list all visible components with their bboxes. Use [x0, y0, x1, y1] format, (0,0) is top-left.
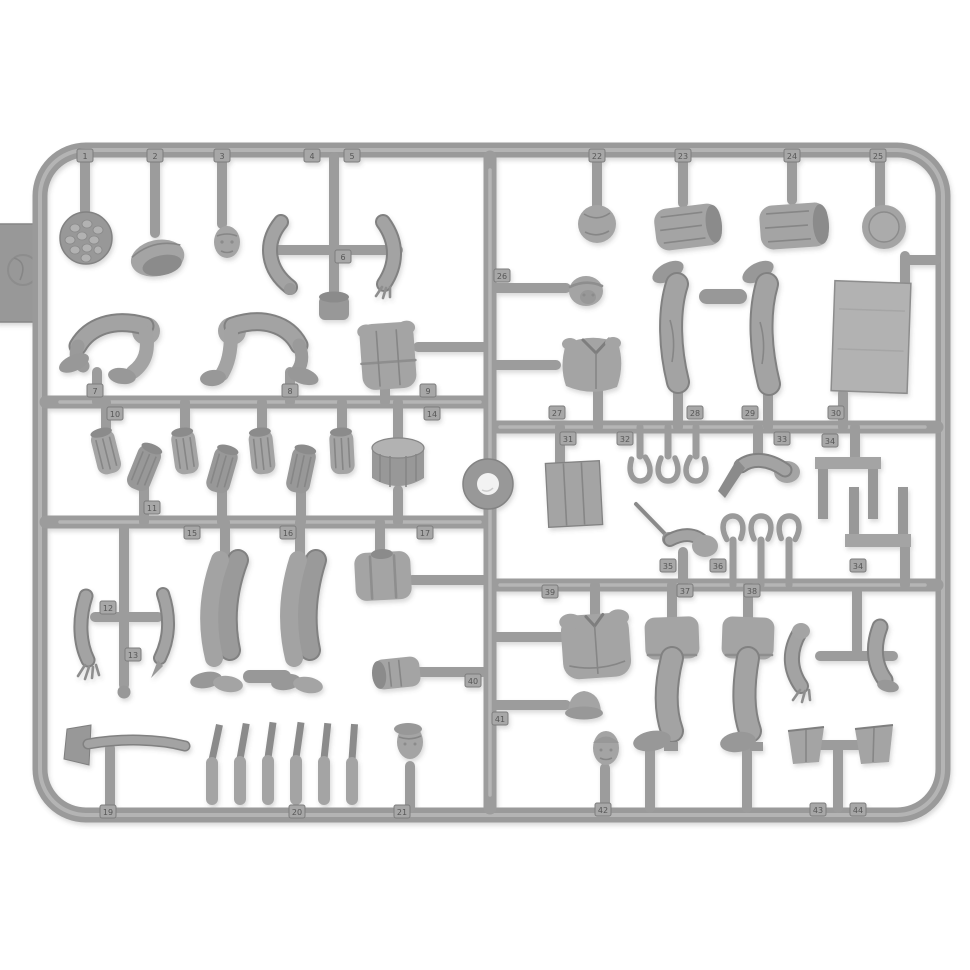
part-seated-legs-a [56, 317, 160, 386]
part-wooden-crate [545, 461, 602, 528]
part-leg-connector [699, 289, 747, 304]
part-number-tag: 22 [589, 149, 605, 162]
svg-text:8: 8 [287, 387, 292, 396]
part-booted-leg-a [632, 616, 700, 754]
part-tunic-torso [562, 337, 621, 392]
part-seated-legs-b [199, 317, 320, 389]
part-number-tag: 23 [675, 149, 691, 162]
part-number-tag: 43 [810, 803, 826, 816]
part-booted-leg-b [719, 616, 775, 754]
svg-text:7: 7 [92, 387, 97, 396]
part-overturned-field-cap [127, 235, 187, 281]
part-axe [64, 725, 185, 765]
part-foot-connector [243, 670, 291, 683]
part-number-tag: 44 [850, 803, 866, 816]
svg-text:26: 26 [497, 272, 507, 281]
svg-text:20: 20 [292, 808, 302, 817]
svg-text:12: 12 [103, 604, 113, 613]
part-wood-stump [372, 438, 424, 487]
part-mess-plate-with-food [60, 212, 112, 264]
part-number-tag: 38 [744, 584, 760, 597]
part-number-tag: 8 [282, 384, 298, 397]
part-number-tag: 34 [850, 559, 866, 572]
svg-text:13: 13 [128, 651, 138, 660]
part-number-tag: 33 [774, 432, 790, 445]
part-inverted-leg-b [739, 256, 777, 384]
part-bare-head [214, 226, 240, 258]
part-log-roll-a [653, 202, 725, 252]
svg-text:24: 24 [787, 152, 797, 161]
part-number-tag: 17 [417, 526, 433, 539]
part-knife-set [206, 722, 358, 805]
part-small-knob [118, 686, 131, 699]
part-number-tag: 37 [677, 584, 693, 597]
svg-text:3: 3 [219, 152, 224, 161]
part-arm-holding-knife [718, 459, 800, 498]
svg-text:44: 44 [853, 806, 863, 815]
part-left-arm [270, 222, 296, 295]
part-number-tag: 41 [492, 712, 508, 725]
svg-text:35: 35 [663, 562, 673, 571]
part-number-tag: 2 [147, 149, 163, 162]
part-number-tag: 27 [549, 406, 565, 419]
part-number-tag: 28 [687, 406, 703, 419]
svg-text:39: 39 [545, 588, 555, 597]
svg-text:43: 43 [813, 806, 823, 815]
part-inverted-leg-a [649, 256, 687, 382]
part-number-tag: 3 [214, 149, 230, 162]
part-number-tag: 32 [617, 432, 633, 445]
part-blanket-panel [831, 281, 911, 394]
part-number-tag: 11 [144, 501, 160, 514]
part-number-tag: 35 [660, 559, 676, 572]
svg-text:15: 15 [187, 529, 197, 538]
svg-text:2: 2 [152, 152, 157, 161]
part-number-tag: 36 [710, 559, 726, 572]
part-round-plate [862, 205, 906, 249]
svg-text:16: 16 [283, 529, 293, 538]
part-number-tag: 31 [560, 432, 576, 445]
part-arm-holding-stick [636, 504, 718, 557]
svg-text:14: 14 [427, 410, 437, 419]
svg-text:40: 40 [468, 677, 478, 686]
sprue-svg: 1234522232425678910142627282930313233341… [0, 0, 970, 970]
part-number-tag: 20 [289, 805, 305, 818]
part-firewood-logs-lower [124, 440, 318, 496]
part-horseshoe-trio-upper [629, 457, 707, 483]
part-number-tag: 9 [420, 384, 436, 397]
svg-text:37: 37 [680, 587, 690, 596]
part-number-tag: 4 [304, 149, 320, 162]
part-number-tag: 25 [870, 149, 886, 162]
part-right-arm-open-hand [376, 222, 394, 298]
part-number-tag: 39 [542, 585, 558, 598]
svg-text:5: 5 [349, 152, 354, 161]
part-number-tag: 14 [424, 407, 440, 420]
sprue-photo: 1234522232425678910142627282930313233341… [0, 0, 970, 970]
part-bent-arm [792, 623, 810, 702]
svg-text:4: 4 [309, 152, 314, 161]
part-horseshoe-trio-lower [722, 515, 799, 539]
svg-text:32: 32 [620, 435, 630, 444]
part-bread-loaf [578, 205, 616, 243]
part-number-tag: 1 [77, 149, 93, 162]
part-side-lying-pot [371, 656, 422, 691]
part-head-with-helmet [593, 731, 619, 765]
part-bucket-a [788, 727, 824, 764]
part-torso-with-suspenders [354, 548, 413, 602]
svg-text:6: 6 [340, 253, 345, 262]
svg-text:34: 34 [853, 562, 863, 571]
part-number-tag: 7 [87, 384, 103, 397]
part-hat [565, 691, 603, 720]
part-number-tag: 26 [494, 269, 510, 282]
svg-text:22: 22 [592, 152, 602, 161]
part-mug [319, 292, 349, 321]
svg-text:30: 30 [831, 409, 841, 418]
part-log-roll-b [759, 202, 831, 251]
part-number-tag: 29 [742, 406, 758, 419]
part-number-tag: 12 [100, 601, 116, 614]
part-number-tag: 16 [280, 526, 296, 539]
svg-text:42: 42 [598, 806, 608, 815]
svg-text:10: 10 [110, 410, 120, 419]
part-head-with-peaked-cap [394, 723, 423, 759]
svg-text:1: 1 [82, 152, 87, 161]
svg-text:28: 28 [690, 409, 700, 418]
part-number-tag: 13 [125, 648, 141, 661]
svg-text:9: 9 [425, 387, 430, 396]
part-head-with-cap [569, 276, 603, 306]
part-number-tag: 21 [394, 805, 410, 818]
svg-text:36: 36 [713, 562, 723, 571]
svg-text:23: 23 [678, 152, 688, 161]
part-sprue-ring [463, 459, 513, 509]
part-number-tag: 42 [595, 803, 611, 816]
svg-text:17: 17 [420, 529, 430, 538]
part-torso-back [357, 320, 420, 391]
svg-text:19: 19 [103, 808, 113, 817]
part-standing-legs-a [189, 560, 244, 694]
svg-text:31: 31 [563, 435, 573, 444]
part-jacket-torso [559, 609, 634, 681]
svg-text:27: 27 [552, 409, 562, 418]
part-number-tag: 40 [465, 674, 481, 687]
svg-text:29: 29 [745, 409, 755, 418]
part-number-tag: 19 [100, 805, 116, 818]
svg-text:25: 25 [873, 152, 883, 161]
part-bucket-b [855, 725, 893, 764]
part-number-tag: 10 [107, 407, 123, 420]
svg-text:33: 33 [777, 435, 787, 444]
part-arm-with-open-hand [78, 596, 99, 679]
part-number-tag: 24 [784, 149, 800, 162]
svg-text:21: 21 [397, 808, 407, 817]
part-number-tag: 30 [828, 406, 844, 419]
svg-text:11: 11 [147, 504, 157, 513]
part-number-tag: 15 [184, 526, 200, 539]
svg-text:41: 41 [495, 715, 505, 724]
part-number-tag: 5 [344, 149, 360, 162]
part-bench-stool-a [815, 457, 881, 519]
part-number-tag: 6 [335, 250, 351, 263]
part-number-tag: 34 [822, 434, 838, 447]
part-arm-13 [151, 594, 168, 678]
svg-text:38: 38 [747, 587, 757, 596]
svg-text:34: 34 [825, 437, 835, 446]
